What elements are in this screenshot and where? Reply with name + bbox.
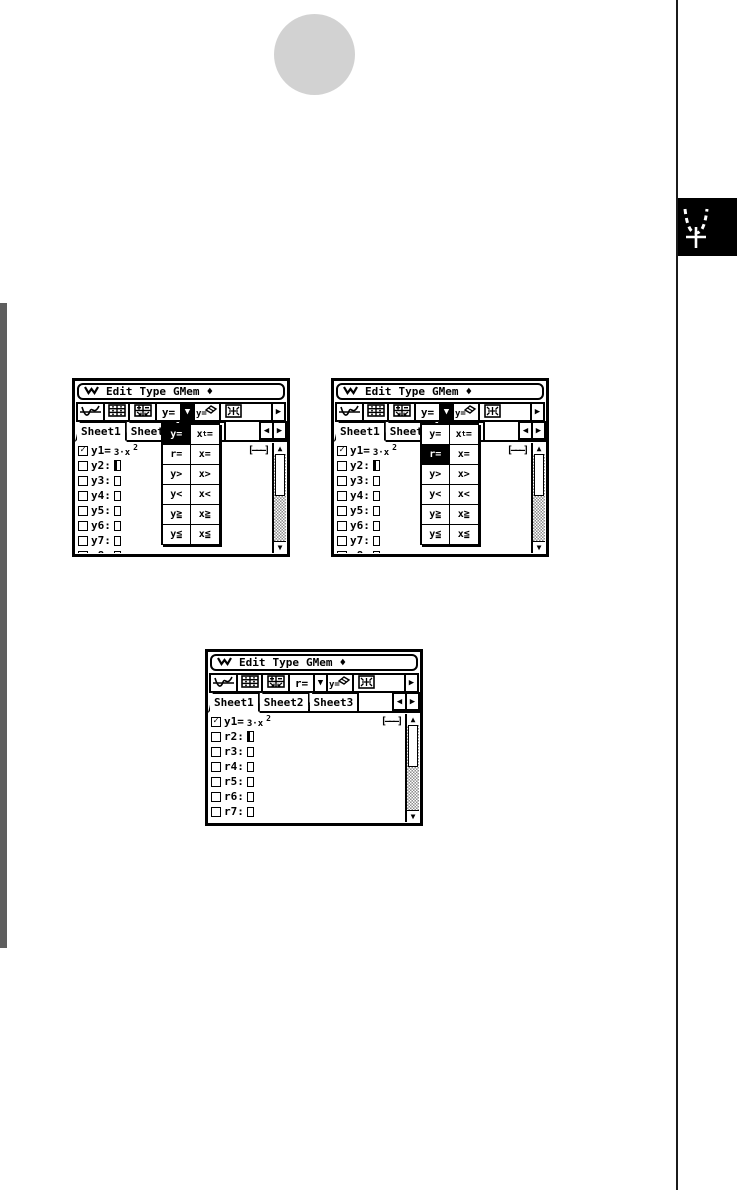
type-option-x[interactable]: x≦: [190, 524, 220, 545]
text-cursor: [373, 460, 380, 471]
function-row[interactable]: r3:: [211, 744, 404, 759]
app-menu-icon[interactable]: [84, 385, 99, 398]
graph-editor-type-menu-y-selected: EditTypeGMem♦y=▼y=▶Sheet1Sheet2Sheet3◀▶✓…: [72, 378, 290, 557]
function-label: y2:: [350, 459, 370, 472]
cell-adjust-icon: [267, 675, 285, 691]
graph-tool-button[interactable]: [209, 673, 238, 693]
scroll-down-icon[interactable]: ▼: [274, 541, 286, 553]
text-cursor: [114, 460, 121, 471]
checkbox-checked[interactable]: ✓: [337, 446, 347, 456]
table-tool-button[interactable]: [236, 673, 263, 693]
checkbox[interactable]: [78, 461, 88, 471]
toolbar-spacer: [245, 402, 273, 422]
menu-item-type[interactable]: Type: [399, 385, 426, 398]
more-tools-button[interactable]: ▶: [271, 402, 286, 422]
menu-item-edit[interactable]: Edit: [239, 656, 266, 669]
expression-exponent: 2: [133, 443, 138, 452]
type-option-x[interactable]: x≧: [190, 504, 220, 525]
type-option-x[interactable]: x<: [190, 484, 220, 505]
type-option-y[interactable]: y<: [162, 484, 192, 505]
more-tools-icon: ▶: [276, 408, 281, 417]
function-label: y4:: [350, 489, 370, 502]
function-label: y1=: [91, 444, 111, 457]
decorative-circle: [274, 14, 355, 95]
function-label: y5:: [91, 504, 111, 517]
type-option-y[interactable]: y>: [421, 464, 451, 485]
clear-sheet-button[interactable]: y=: [452, 402, 480, 422]
empty-entry-box: [114, 551, 121, 554]
table-icon: [241, 675, 259, 691]
type-option-x[interactable]: x≧: [449, 504, 479, 525]
table-tool-button[interactable]: [362, 402, 389, 422]
type-option-y[interactable]: y<: [421, 484, 451, 505]
scrollbar[interactable]: ▲▼: [531, 443, 545, 553]
menu-bar: EditTypeGMem♦: [210, 654, 418, 671]
more-tools-icon: ▶: [409, 679, 414, 688]
type-option-y[interactable]: y≦: [162, 524, 192, 545]
function-row[interactable]: y8:: [78, 548, 271, 553]
clear-sheet-icon: y=: [329, 675, 351, 692]
menu-item-edit[interactable]: Edit: [106, 385, 133, 398]
checkbox[interactable]: [78, 521, 88, 531]
graph-icon: [339, 404, 360, 420]
menu-item-gmem[interactable]: GMem: [306, 656, 333, 669]
tab-sheet2[interactable]: Sheet2: [258, 692, 310, 711]
resize-icon: [225, 404, 242, 421]
graph-editor-type-menu-r-selected: EditTypeGMem♦y=▼y=▶Sheet1Sheet2Sheet3◀▶✓…: [331, 378, 549, 557]
type-button[interactable]: r=: [288, 673, 315, 693]
menu-item-edit[interactable]: Edit: [365, 385, 392, 398]
checkbox[interactable]: [211, 807, 221, 817]
empty-entry-box: [247, 822, 254, 823]
function-label: r5:: [224, 775, 244, 788]
dropdown-arrow-icon: ▼: [318, 679, 323, 688]
graph-editor-r-type-applied: EditTypeGMem♦r=▼y=▶Sheet1Sheet2Sheet3◀▶✓…: [205, 649, 423, 826]
resize-tool-button[interactable]: [219, 402, 247, 422]
page-margin-rule: [676, 0, 678, 1190]
chapter-tab: [678, 198, 737, 256]
type-option-x[interactable]: x>: [190, 464, 220, 485]
type-option-x[interactable]: x=: [449, 444, 479, 465]
checkbox-checked[interactable]: ✓: [211, 717, 221, 727]
expression-base: 3·x: [373, 448, 389, 458]
type-option-x[interactable]: x>: [449, 464, 479, 485]
graph-style-indicator: [———]: [248, 445, 268, 456]
checkbox[interactable]: [337, 536, 347, 546]
section-side-bar: [0, 303, 7, 948]
tab-scroll-right-button[interactable]: ▶: [531, 421, 546, 440]
type-button[interactable]: y=: [155, 402, 182, 422]
type-option-xt[interactable]: xt=: [449, 424, 479, 445]
tab-scroll-right-button[interactable]: ▶: [405, 692, 420, 711]
app-menu-icon[interactable]: [217, 656, 232, 669]
empty-entry-box: [373, 536, 380, 546]
menu-diamond-icon: ♦: [340, 656, 347, 669]
menu-item-gmem[interactable]: GMem: [432, 385, 459, 398]
checkbox[interactable]: [337, 491, 347, 501]
empty-entry-box: [373, 476, 380, 486]
function-label: y8:: [350, 549, 370, 553]
graph-icon: [213, 675, 234, 691]
table-icon: [367, 404, 385, 420]
tab-scroll-right-button[interactable]: ▶: [272, 421, 287, 440]
graph-tool-button[interactable]: [76, 402, 105, 422]
checkbox[interactable]: [337, 521, 347, 531]
checkbox[interactable]: [211, 792, 221, 802]
text-cursor: [247, 731, 254, 742]
function-label: y1=: [350, 444, 370, 457]
function-label: y4:: [91, 489, 111, 502]
resize-tool-button[interactable]: [352, 673, 380, 693]
dropdown-arrow-icon: ▼: [185, 408, 190, 417]
function-row[interactable]: y8:: [337, 548, 530, 553]
type-button[interactable]: y=: [414, 402, 441, 422]
cell-adjust-tool-button[interactable]: [128, 402, 157, 422]
type-option-x[interactable]: x=: [190, 444, 220, 465]
function-row[interactable]: r5:: [211, 774, 404, 789]
scrollbar[interactable]: ▲▼: [272, 443, 286, 553]
sheet-tab-bar: Sheet1Sheet2Sheet3◀▶: [208, 693, 420, 713]
table-tool-button[interactable]: [103, 402, 130, 422]
checkbox[interactable]: [337, 551, 347, 554]
function-label: y6:: [350, 519, 370, 532]
type-option-y[interactable]: y≦: [421, 524, 451, 545]
function-row[interactable]: r4:: [211, 759, 404, 774]
checkbox[interactable]: [78, 536, 88, 546]
expression-exponent: 2: [392, 443, 397, 452]
scrollbar-thumb[interactable]: [408, 725, 418, 767]
toolbar: r=▼y=▶: [209, 673, 419, 693]
more-tools-button[interactable]: ▶: [530, 402, 545, 422]
checkbox[interactable]: [211, 822, 221, 823]
graph-tool-button[interactable]: [335, 402, 364, 422]
expression-base: 3·x: [114, 448, 130, 458]
function-row[interactable]: r8:: [211, 819, 404, 822]
parabola-graph-icon: [681, 205, 711, 249]
checkbox[interactable]: [78, 491, 88, 501]
checkbox[interactable]: [211, 747, 221, 757]
scrollbar-track[interactable]: [407, 725, 419, 811]
scrollbar-thumb[interactable]: [534, 454, 544, 496]
menu-item-gmem[interactable]: GMem: [173, 385, 200, 398]
cell-adjust-tool-button[interactable]: [261, 673, 290, 693]
function-label: y6:: [91, 519, 111, 532]
scroll-up-icon[interactable]: ▲: [274, 443, 286, 454]
type-option-y[interactable]: y≧: [421, 504, 451, 525]
clear-sheet-button[interactable]: y=: [193, 402, 221, 422]
type-option-r[interactable]: r=: [162, 444, 192, 465]
function-label: r3:: [224, 745, 244, 758]
menu-diamond-icon: ♦: [466, 385, 473, 398]
type-dropdown-menu: y=xt=r=x=y>x>y<x<y≧x≧y≦x≦: [420, 423, 479, 545]
resize-tool-button[interactable]: [478, 402, 506, 422]
dropdown-arrow-icon: ▼: [444, 408, 449, 417]
empty-entry-box: [247, 747, 254, 757]
graph-icon: [80, 404, 101, 420]
cell-adjust-icon: [393, 404, 411, 420]
function-label: y3:: [91, 474, 111, 487]
empty-entry-box: [247, 792, 254, 802]
function-label: r4:: [224, 760, 244, 773]
function-list: ✓y1=3·x2r2:r3:r4:r5:r6:r7:r8:: [211, 714, 404, 822]
toolbar: y=▼y=▶: [76, 402, 286, 422]
empty-entry-box: [114, 536, 121, 546]
function-row[interactable]: r7:: [211, 804, 404, 819]
tab-sheet1[interactable]: Sheet1: [208, 692, 260, 713]
empty-entry-box: [373, 506, 380, 516]
checkbox[interactable]: [78, 506, 88, 516]
graph-style-indicator: [———]: [507, 445, 527, 456]
function-label: r6:: [224, 790, 244, 803]
type-option-x[interactable]: x<: [449, 484, 479, 505]
menu-bar: EditTypeGMem♦: [336, 383, 544, 400]
function-label: y2:: [91, 459, 111, 472]
function-label: r7:: [224, 805, 244, 818]
menu-bar: EditTypeGMem♦: [77, 383, 285, 400]
empty-entry-box: [373, 491, 380, 501]
function-label: y7:: [91, 534, 111, 547]
manual-page: EditTypeGMem♦y=▼y=▶Sheet1Sheet2Sheet3◀▶✓…: [0, 0, 737, 1190]
function-label: y7:: [350, 534, 370, 547]
empty-entry-box: [114, 491, 121, 501]
empty-entry-box: [247, 762, 254, 772]
clear-sheet-icon: y=: [455, 404, 477, 421]
empty-entry-box: [373, 551, 380, 554]
clear-sheet-button[interactable]: y=: [326, 673, 354, 693]
empty-entry-box: [114, 521, 121, 531]
type-dropdown-menu: y=xt=r=x=y>x>y<x<y≧x≧y≦x≦: [161, 423, 220, 545]
scroll-down-icon[interactable]: ▼: [407, 810, 419, 822]
empty-entry-box: [114, 476, 121, 486]
expression-base: 3·x: [247, 719, 263, 729]
type-option-y[interactable]: y>: [162, 464, 192, 485]
function-label: y3:: [350, 474, 370, 487]
tab-sheet3[interactable]: Sheet3: [308, 692, 360, 711]
more-tools-icon: ▶: [535, 408, 540, 417]
type-option-y[interactable]: y≧: [162, 504, 192, 525]
function-label: r2:: [224, 730, 244, 743]
checkbox[interactable]: [337, 476, 347, 486]
type-option-y[interactable]: y=: [162, 424, 192, 445]
type-option-r[interactable]: r=: [421, 444, 451, 465]
menu-item-type[interactable]: Type: [273, 656, 300, 669]
tab-sheet1[interactable]: Sheet1: [334, 421, 386, 442]
function-label: y5:: [350, 504, 370, 517]
scrollbar-thumb[interactable]: [275, 454, 285, 496]
cell-adjust-icon: [134, 404, 152, 420]
empty-entry-box: [114, 506, 121, 516]
menu-diamond-icon: ♦: [207, 385, 214, 398]
type-option-xt[interactable]: xt=: [190, 424, 220, 445]
resize-icon: [358, 675, 375, 692]
empty-entry-box: [373, 521, 380, 531]
scrollbar-track[interactable]: [533, 454, 545, 542]
function-row[interactable]: ✓y1=3·x2: [211, 714, 404, 729]
clear-sheet-icon: y=: [196, 404, 218, 421]
checkbox[interactable]: [78, 551, 88, 554]
scroll-up-icon[interactable]: ▲: [533, 443, 545, 454]
expression-exponent: 2: [266, 714, 271, 723]
toolbar-spacer: [504, 402, 532, 422]
toolbar-spacer: [378, 673, 406, 693]
function-label: y1=: [224, 715, 244, 728]
graph-style-indicator: [———]: [381, 716, 401, 727]
checkbox[interactable]: [337, 461, 347, 471]
type-option-x[interactable]: x≦: [449, 524, 479, 545]
function-label: r8:: [224, 820, 244, 822]
scrollbar[interactable]: ▲▼: [405, 714, 419, 822]
function-label: y8:: [91, 549, 111, 553]
empty-entry-box: [247, 807, 254, 817]
scroll-up-icon[interactable]: ▲: [407, 714, 419, 725]
checkbox[interactable]: [211, 762, 221, 772]
checkbox-checked[interactable]: ✓: [78, 446, 88, 456]
checkbox[interactable]: [211, 777, 221, 787]
scrollbar-track[interactable]: [274, 454, 286, 542]
function-row[interactable]: r2:: [211, 729, 404, 744]
toolbar: y=▼y=▶: [335, 402, 545, 422]
checkbox[interactable]: [337, 506, 347, 516]
menu-item-type[interactable]: Type: [140, 385, 167, 398]
checkbox[interactable]: [211, 732, 221, 742]
checkbox[interactable]: [78, 476, 88, 486]
resize-icon: [484, 404, 501, 421]
more-tools-button[interactable]: ▶: [404, 673, 419, 693]
tab-sheet1[interactable]: Sheet1: [75, 421, 127, 442]
table-icon: [108, 404, 126, 420]
type-option-y[interactable]: y=: [421, 424, 451, 445]
app-menu-icon[interactable]: [343, 385, 358, 398]
empty-entry-box: [247, 777, 254, 787]
cell-adjust-tool-button[interactable]: [387, 402, 416, 422]
scroll-down-icon[interactable]: ▼: [533, 541, 545, 553]
function-row[interactable]: r6:: [211, 789, 404, 804]
